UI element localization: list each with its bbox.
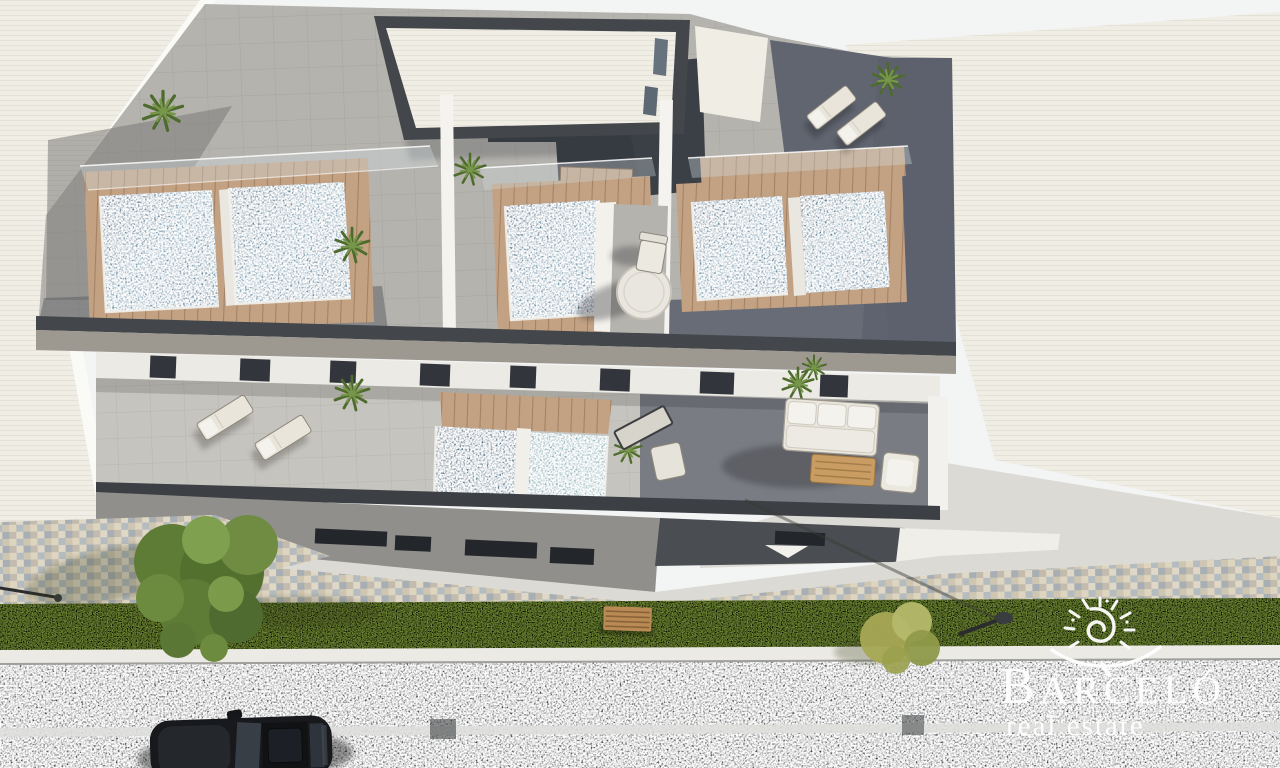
brand-tagline: real estate [1006, 710, 1145, 742]
rooftop-pool-middle [480, 158, 671, 336]
rooftop-pool-right-pair [676, 146, 912, 312]
render-canvas: BARCELÓ real estate [0, 0, 1280, 768]
penthouse-roof [374, 16, 690, 140]
side-chair [650, 442, 686, 481]
coffee-table [810, 454, 876, 486]
terrace-chair [634, 232, 668, 274]
round-daybed-table [617, 265, 671, 319]
rooftop-terraces [36, 4, 956, 374]
architectural-render-scene: BARCELÓ real estate [0, 0, 1280, 768]
armchair [880, 452, 920, 494]
bench [599, 606, 654, 636]
